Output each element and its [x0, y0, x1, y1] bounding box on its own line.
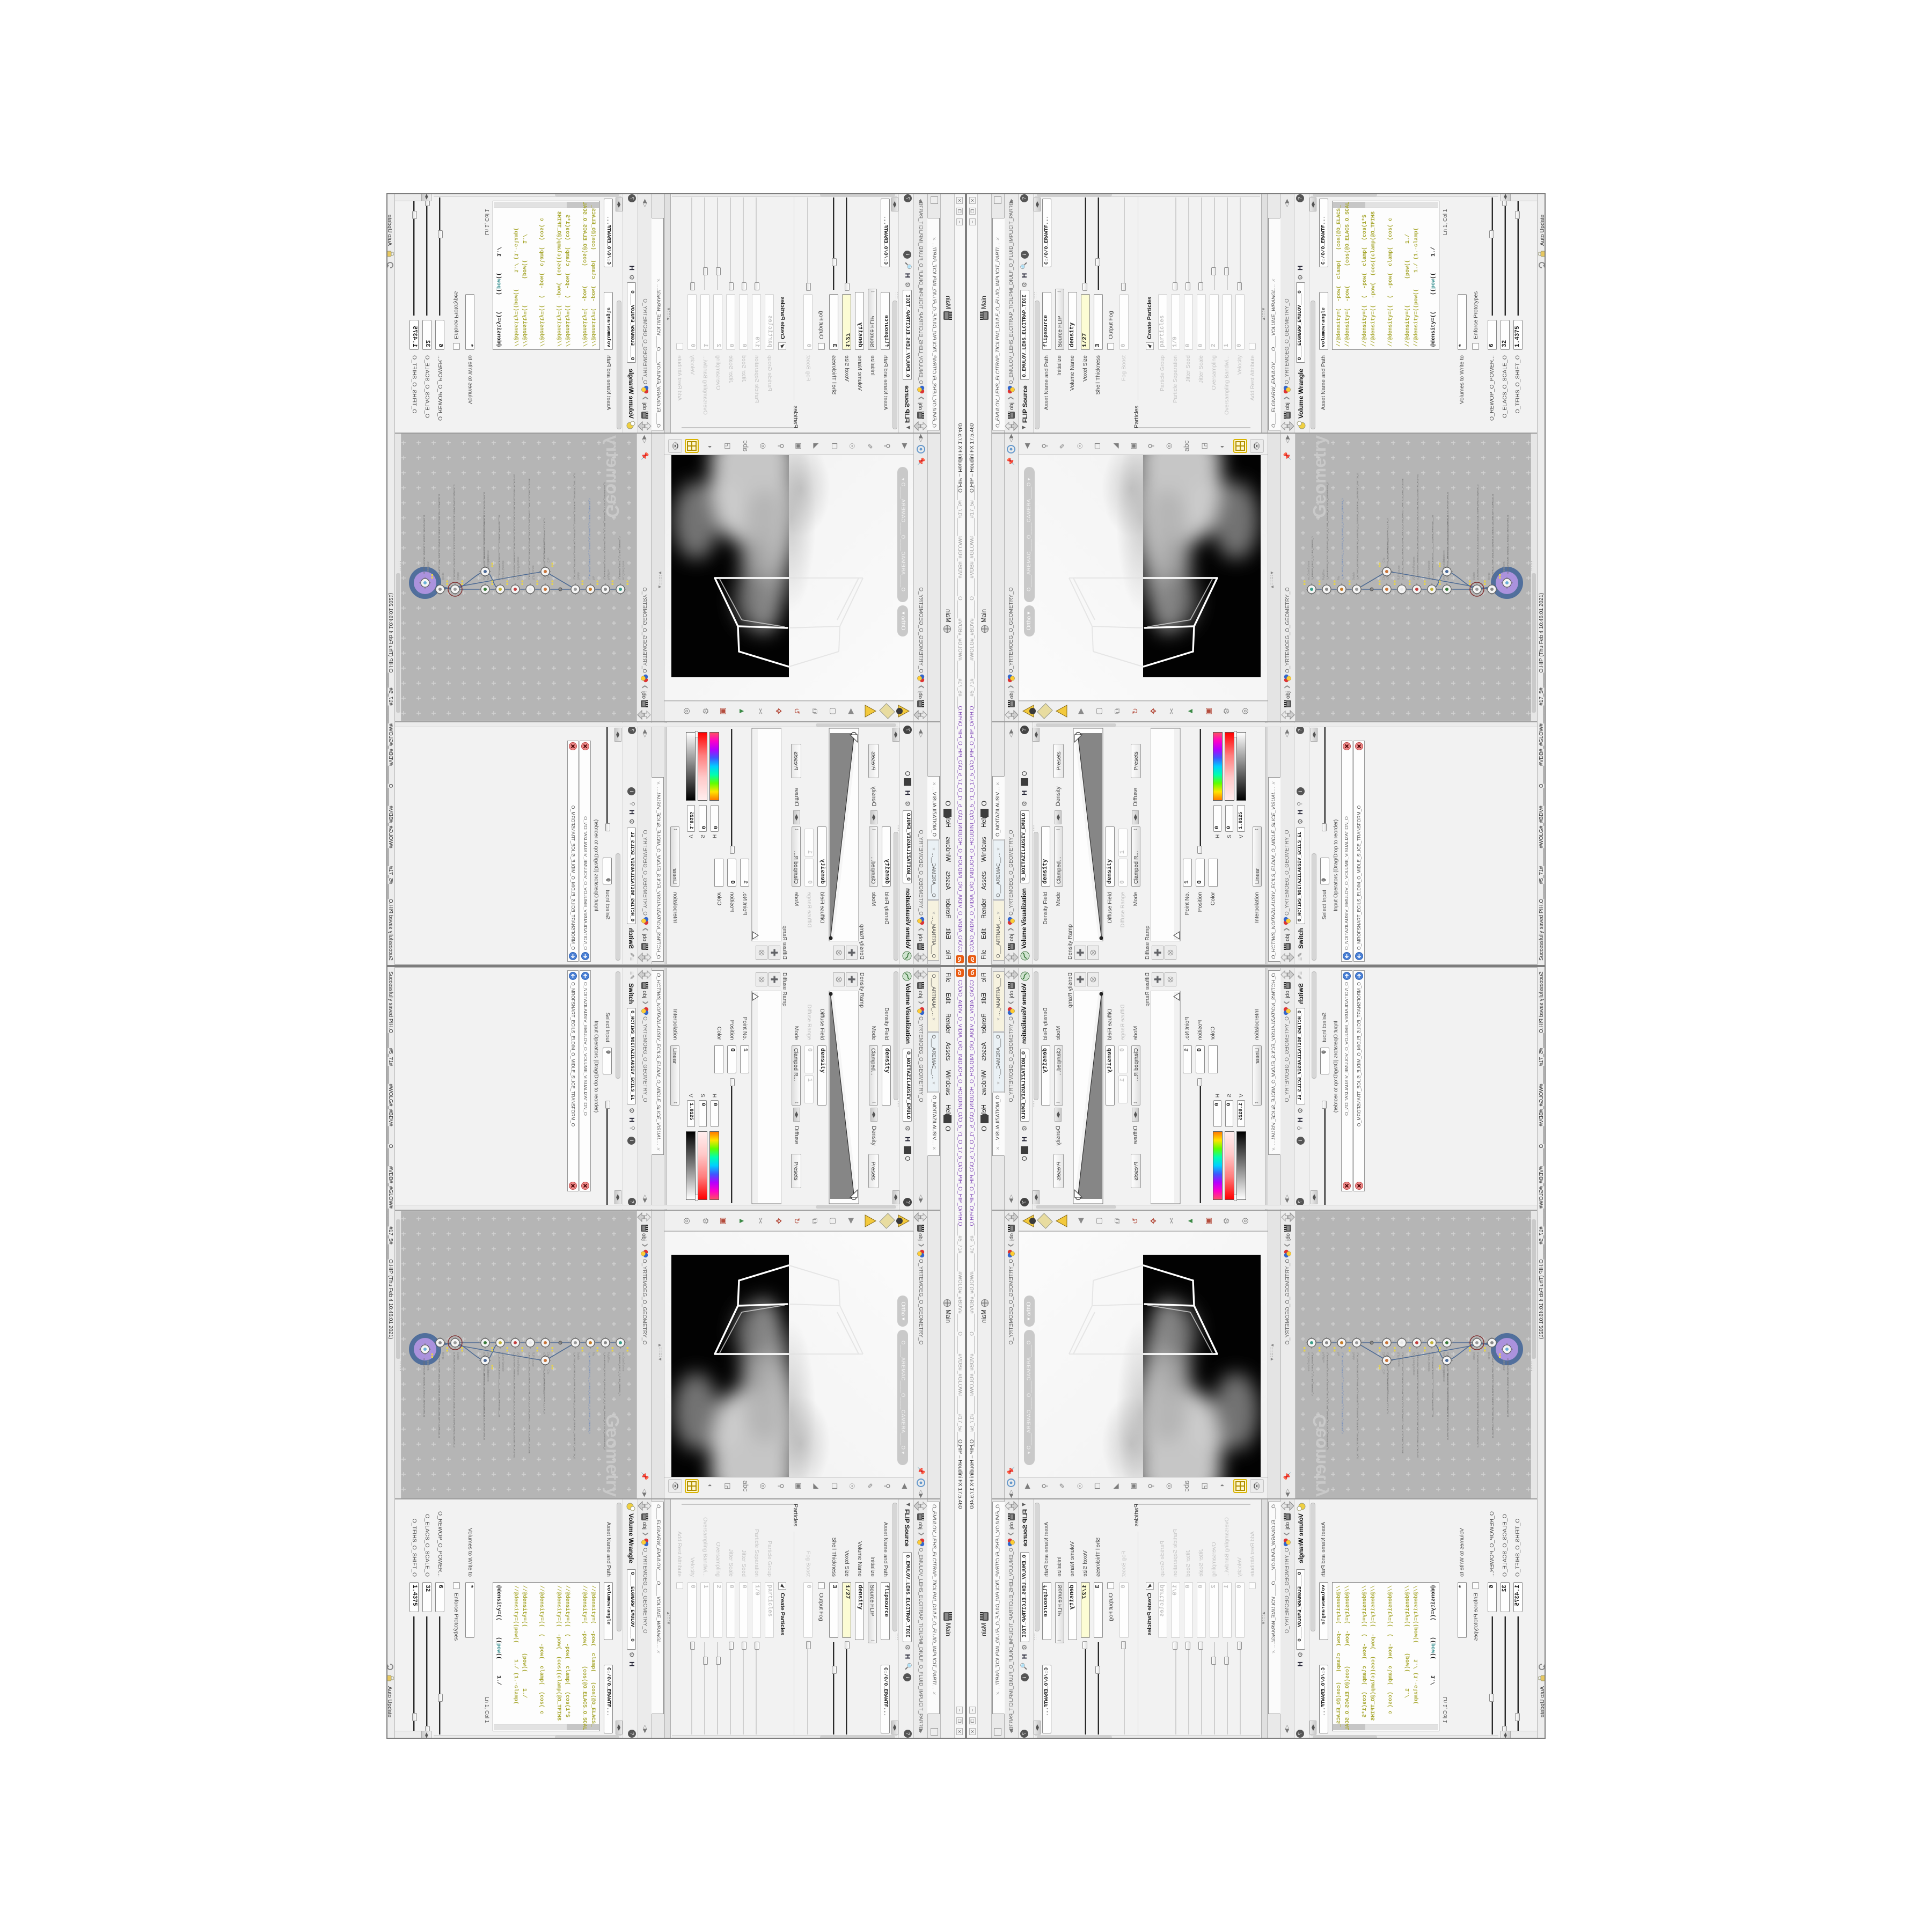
- svg-text:O_HCTIWS_NOITAZILAUSIV_ECILS_E: O_HCTIWS_NOITAZILAUSIV_ECILS_ELDIM_O_MID…: [1476, 484, 1479, 580]
- svg-text:O_SNOGYLOP_YRTEMOEG_MORF_EMULO: O_SNOGYLOP_YRTEMOEG_MORF_EMULOV_BDV_O_VD…: [1416, 473, 1419, 580]
- svg-text:O_MROFSNART_TLUSER_O_RESULT_TR: O_MROFSNART_TLUSER_O_RESULT_TRANSFORM_O: [1506, 1358, 1509, 1417]
- svg-text:VDB from Polygons: VDB from Polygons: [516, 557, 519, 580]
- svg-text:O_EMULOV_LEHS_ELCITRAP_TICILPM: O_EMULOV_LEHS_ELCITRAP_TICILPMI_DIULF_O_…: [1401, 478, 1404, 580]
- svg-text:O_PILC_ECAFRUS_O_SURFACE_CLIP_: O_PILC_ECAFRUS_O_SURFACE_CLIP_O: [543, 1370, 546, 1414]
- svg-text:O_JBO.PETS_TREPOLS_D_1SUNEG_O_: O_JBO.PETS_TREPOLS_D_1SUNEG_O_GENUS1_D_S…: [588, 498, 591, 580]
- svg-text:O_MROFSNART_ECILS_ELDIM_O_MIDL: O_MROFSNART_ECILS_ELDIM_O_MIDLE_SLICE_TR…: [483, 492, 486, 562]
- svg-text:Clip: Clip: [1382, 558, 1386, 562]
- svg-text:Clip: Clip: [546, 558, 550, 562]
- svg-text:O___ELGNARW_EMULOV___O___VOLUM: O___ELGNARW_EMULOV___O___VOLUME_WRANGLE_…: [498, 1352, 501, 1417]
- svg-text:FLIP Source: FLIP Source: [531, 565, 535, 580]
- svg-text:O_ECAFRUS_HTIW_EMULOV_EGREM_O_: O_ECAFRUS_HTIW_EMULOV_EGREM_O_MERGE_VOLU…: [1491, 1352, 1494, 1438]
- svg-text:Transform: Transform: [426, 561, 429, 574]
- svg-text:File: File: [591, 576, 595, 580]
- svg-text:Switch: Switch: [576, 572, 580, 580]
- svg-text:Switch: Switch: [1473, 1352, 1476, 1360]
- svg-text:Switch: Switch: [456, 1352, 459, 1360]
- svg-text:O_HCTIWS_YRTEMOEG_LANRETXE_LAN: O_HCTIWS_YRTEMOEG_LANRETXE_LANRETNI_O_IN…: [1356, 473, 1359, 580]
- svg-text:Switch: Switch: [1352, 572, 1356, 580]
- svg-text:O_MROFSNART_ECILS_ELDIM_O_MIDL: O_MROFSNART_ECILS_ELDIM_O_MIDLE_SLICE_TR…: [483, 1370, 486, 1440]
- svg-text:PolyWire: PolyWire: [606, 1352, 610, 1363]
- svg-text:Volume Wrangle: Volume Wrangle: [1428, 1352, 1431, 1372]
- svg-text:O_EREHPS_EBUC_O_CUBE_SPHERE_O: O_EREHPS_EBUC_O_CUBE_SPHERE_O: [618, 1352, 621, 1396]
- svg-text:VDB from Polygons: VDB from Polygons: [516, 1352, 519, 1375]
- svg-text:PolyWire: PolyWire: [1322, 569, 1326, 580]
- svg-text:Transform: Transform: [1443, 1370, 1446, 1382]
- svg-text:VDB from Polygons: VDB from Polygons: [1413, 1352, 1416, 1375]
- svg-text:O_JBO.PETS_TREPOLS_D_1SUNEG_O_: O_JBO.PETS_TREPOLS_D_1SUNEG_O_GENUS1_D_S…: [1341, 498, 1344, 580]
- svg-text:Transform: Transform: [426, 1358, 429, 1371]
- svg-text:O_SNOGYLOP_YRTEMOEG_MORF_EMULO: O_SNOGYLOP_YRTEMOEG_MORF_EMULOV_BDV_O_VD…: [513, 1352, 516, 1459]
- svg-text:FLIP Source: FLIP Source: [1397, 565, 1401, 580]
- svg-text:O_EMARFERIW_NOGYLOP_EREHPS_EBU: O_EMARFERIW_NOGYLOP_EREHPS_EBUC_O_CUBE_S…: [603, 481, 606, 580]
- svg-text:O_JBO.PETS_TREPOLS_D_1SUNEG_O_: O_JBO.PETS_TREPOLS_D_1SUNEG_O_GENUS1_D_S…: [1341, 1352, 1344, 1434]
- svg-text:VDB from Polygons: VDB from Polygons: [1413, 557, 1416, 580]
- svg-text:O___ELGNARW_EMULOV___O___VOLUM: O___ELGNARW_EMULOV___O___VOLUME_WRANGLE_…: [1431, 1352, 1434, 1417]
- svg-text:O_HCTIWS_NOITAZILAUSIV_ECILS_E: O_HCTIWS_NOITAZILAUSIV_ECILS_ELDIM_O_MID…: [453, 1352, 456, 1448]
- svg-text:an_CubeSphere: an_CubeSphere: [621, 560, 625, 580]
- svg-text:O___ELGNARW_EMULOV___O___VOLUM: O___ELGNARW_EMULOV___O___VOLUME_WRANGLE_…: [498, 515, 501, 580]
- svg-text:O_HCTIWS_NOITAZILAUSIV_ECILS_E: O_HCTIWS_NOITAZILAUSIV_ECILS_ELDIM_O_MID…: [1476, 1352, 1479, 1448]
- svg-text:Merge: Merge: [1488, 573, 1491, 580]
- svg-text:FLIP Source: FLIP Source: [531, 1352, 535, 1367]
- svg-text:Volume Wrangle: Volume Wrangle: [501, 1352, 504, 1372]
- svg-text:O_PILC_ECAFRUS_O_SURFACE_CLIP_: O_PILC_ECAFRUS_O_SURFACE_CLIP_O: [1386, 1370, 1389, 1414]
- svg-text:O_EMULOV_LEHS_ELCITRAP_TICILPM: O_EMULOV_LEHS_ELCITRAP_TICILPMI_DIULF_O_…: [528, 1352, 531, 1454]
- svg-text:O_HCTIWS_NOITAZILAUSIV_ECILS_E: O_HCTIWS_NOITAZILAUSIV_ECILS_ELDIM_O_MID…: [453, 484, 456, 580]
- svg-text:File: File: [1337, 1352, 1341, 1356]
- svg-text:O_PILC_ECAFRUS_O_SURFACE_CLIP_: O_PILC_ECAFRUS_O_SURFACE_CLIP_O: [543, 518, 546, 562]
- svg-text:an_CubeSphere: an_CubeSphere: [621, 1352, 625, 1372]
- svg-text:Merge: Merge: [441, 1352, 444, 1359]
- svg-text:Switch: Switch: [1473, 572, 1476, 580]
- svg-text:PolyWire: PolyWire: [1322, 1352, 1326, 1363]
- svg-text:Clip: Clip: [546, 1370, 550, 1374]
- svg-text:O_EMARFERIW_NOGYLOP_EREHPS_EBU: O_EMARFERIW_NOGYLOP_EREHPS_EBUC_O_CUBE_S…: [603, 1352, 606, 1451]
- svg-text:PolyWire: PolyWire: [606, 569, 610, 580]
- svg-text:O_HCTIWS_YRTEMOEG_LANRETXE_LAN: O_HCTIWS_YRTEMOEG_LANRETXE_LANRETNI_O_IN…: [573, 473, 576, 580]
- svg-text:O_SNOGYLOP_YRTEMOEG_MORF_EMULO: O_SNOGYLOP_YRTEMOEG_MORF_EMULOV_BDV_O_VD…: [513, 473, 516, 580]
- svg-text:O_HCTIWS_YRTEMOEG_LANRETXE_LAN: O_HCTIWS_YRTEMOEG_LANRETXE_LANRETNI_O_IN…: [573, 1352, 576, 1459]
- svg-text:O_ECAFRUS_HTIW_EMULOV_EGREM_O_: O_ECAFRUS_HTIW_EMULOV_EGREM_O_MERGE_VOLU…: [438, 1352, 441, 1438]
- svg-text:Switch: Switch: [456, 572, 459, 580]
- svg-text:O_SNOGYLOP_YRTEMOEG_MORF_EMULO: O_SNOGYLOP_YRTEMOEG_MORF_EMULOV_BDV_O_VD…: [1416, 1352, 1419, 1459]
- svg-text:O_MROFSNART_ECILS_ELDIM_O_MIDL: O_MROFSNART_ECILS_ELDIM_O_MIDLE_SLICE_TR…: [1446, 492, 1449, 562]
- svg-text:O_MROFSNART_ECILS_ELDIM_O_MIDL: O_MROFSNART_ECILS_ELDIM_O_MIDLE_SLICE_TR…: [1446, 1370, 1449, 1440]
- svg-text:O_JBO.PETS_TREPOLS_D_1SUNEG_O_: O_JBO.PETS_TREPOLS_D_1SUNEG_O_GENUS1_D_S…: [588, 1352, 591, 1434]
- svg-text:O_MROFSNART_TLUSER_O_RESULT_TR: O_MROFSNART_TLUSER_O_RESULT_TRANSFORM_O: [423, 515, 426, 574]
- svg-text:Merge: Merge: [441, 573, 444, 580]
- svg-text:Merge: Merge: [1488, 1352, 1491, 1359]
- svg-text:Volume Wrangle: Volume Wrangle: [1428, 560, 1431, 580]
- svg-text:Switch: Switch: [576, 1352, 580, 1360]
- svg-text:O_ECAFRUS_HTIW_EMULOV_EGREM_O_: O_ECAFRUS_HTIW_EMULOV_EGREM_O_MERGE_VOLU…: [1491, 494, 1494, 580]
- svg-text:O_EMARFERIW_NOGYLOP_EREHPS_EBU: O_EMARFERIW_NOGYLOP_EREHPS_EBUC_O_CUBE_S…: [1326, 481, 1329, 580]
- svg-text:O_EMULOV_LEHS_ELCITRAP_TICILPM: O_EMULOV_LEHS_ELCITRAP_TICILPMI_DIULF_O_…: [528, 478, 531, 580]
- svg-text:Transform: Transform: [1443, 550, 1446, 562]
- svg-text:Transform: Transform: [486, 550, 489, 562]
- svg-text:O_HCTIWS_YRTEMOEG_LANRETXE_LAN: O_HCTIWS_YRTEMOEG_LANRETXE_LANRETNI_O_IN…: [1356, 1352, 1359, 1459]
- svg-text:Transform: Transform: [486, 1370, 489, 1382]
- svg-text:File: File: [591, 1352, 595, 1356]
- svg-text:O_EMULOV_LEHS_ELCITRAP_TICILPM: O_EMULOV_LEHS_ELCITRAP_TICILPMI_DIULF_O_…: [1401, 1352, 1404, 1454]
- svg-text:FLIP Source: FLIP Source: [1397, 1352, 1401, 1367]
- svg-text:Clip: Clip: [1382, 575, 1386, 580]
- svg-text:Switch: Switch: [1352, 1352, 1356, 1360]
- svg-text:O_PILC_ECAFRUS_O_SURFACE_CLIP_: O_PILC_ECAFRUS_O_SURFACE_CLIP_O: [1386, 518, 1389, 562]
- svg-text:O_ECAFRUS_HTIW_EMULOV_EGREM_O_: O_ECAFRUS_HTIW_EMULOV_EGREM_O_MERGE_VOLU…: [438, 494, 441, 580]
- svg-text:O_EREHPS_EBUC_O_CUBE_SPHERE_O: O_EREHPS_EBUC_O_CUBE_SPHERE_O: [1311, 536, 1314, 580]
- svg-text:Clip: Clip: [546, 1352, 550, 1357]
- svg-text:O___ELGNARW_EMULOV___O___VOLUM: O___ELGNARW_EMULOV___O___VOLUME_WRANGLE_…: [1431, 515, 1434, 580]
- svg-text:Volume Wrangle: Volume Wrangle: [501, 560, 504, 580]
- svg-text:Clip: Clip: [1382, 1352, 1386, 1357]
- svg-text:Clip: Clip: [546, 575, 550, 580]
- svg-text:File: File: [1337, 576, 1341, 580]
- svg-text:O_MROFSNART_TLUSER_O_RESULT_TR: O_MROFSNART_TLUSER_O_RESULT_TRANSFORM_O: [1506, 515, 1509, 574]
- svg-text:Clip: Clip: [1382, 1370, 1386, 1374]
- svg-text:O_EREHPS_EBUC_O_CUBE_SPHERE_O: O_EREHPS_EBUC_O_CUBE_SPHERE_O: [1311, 1352, 1314, 1396]
- svg-text:an_CubeSphere: an_CubeSphere: [1307, 1352, 1311, 1372]
- svg-text:O_MROFSNART_TLUSER_O_RESULT_TR: O_MROFSNART_TLUSER_O_RESULT_TRANSFORM_O: [423, 1358, 426, 1417]
- svg-text:an_CubeSphere: an_CubeSphere: [1307, 560, 1311, 580]
- svg-text:Transform: Transform: [1503, 561, 1506, 574]
- svg-text:Transform: Transform: [1503, 1358, 1506, 1371]
- svg-text:O_EMARFERIW_NOGYLOP_EREHPS_EBU: O_EMARFERIW_NOGYLOP_EREHPS_EBUC_O_CUBE_S…: [1326, 1352, 1329, 1451]
- svg-text:O_EREHPS_EBUC_O_CUBE_SPHERE_O: O_EREHPS_EBUC_O_CUBE_SPHERE_O: [618, 536, 621, 580]
